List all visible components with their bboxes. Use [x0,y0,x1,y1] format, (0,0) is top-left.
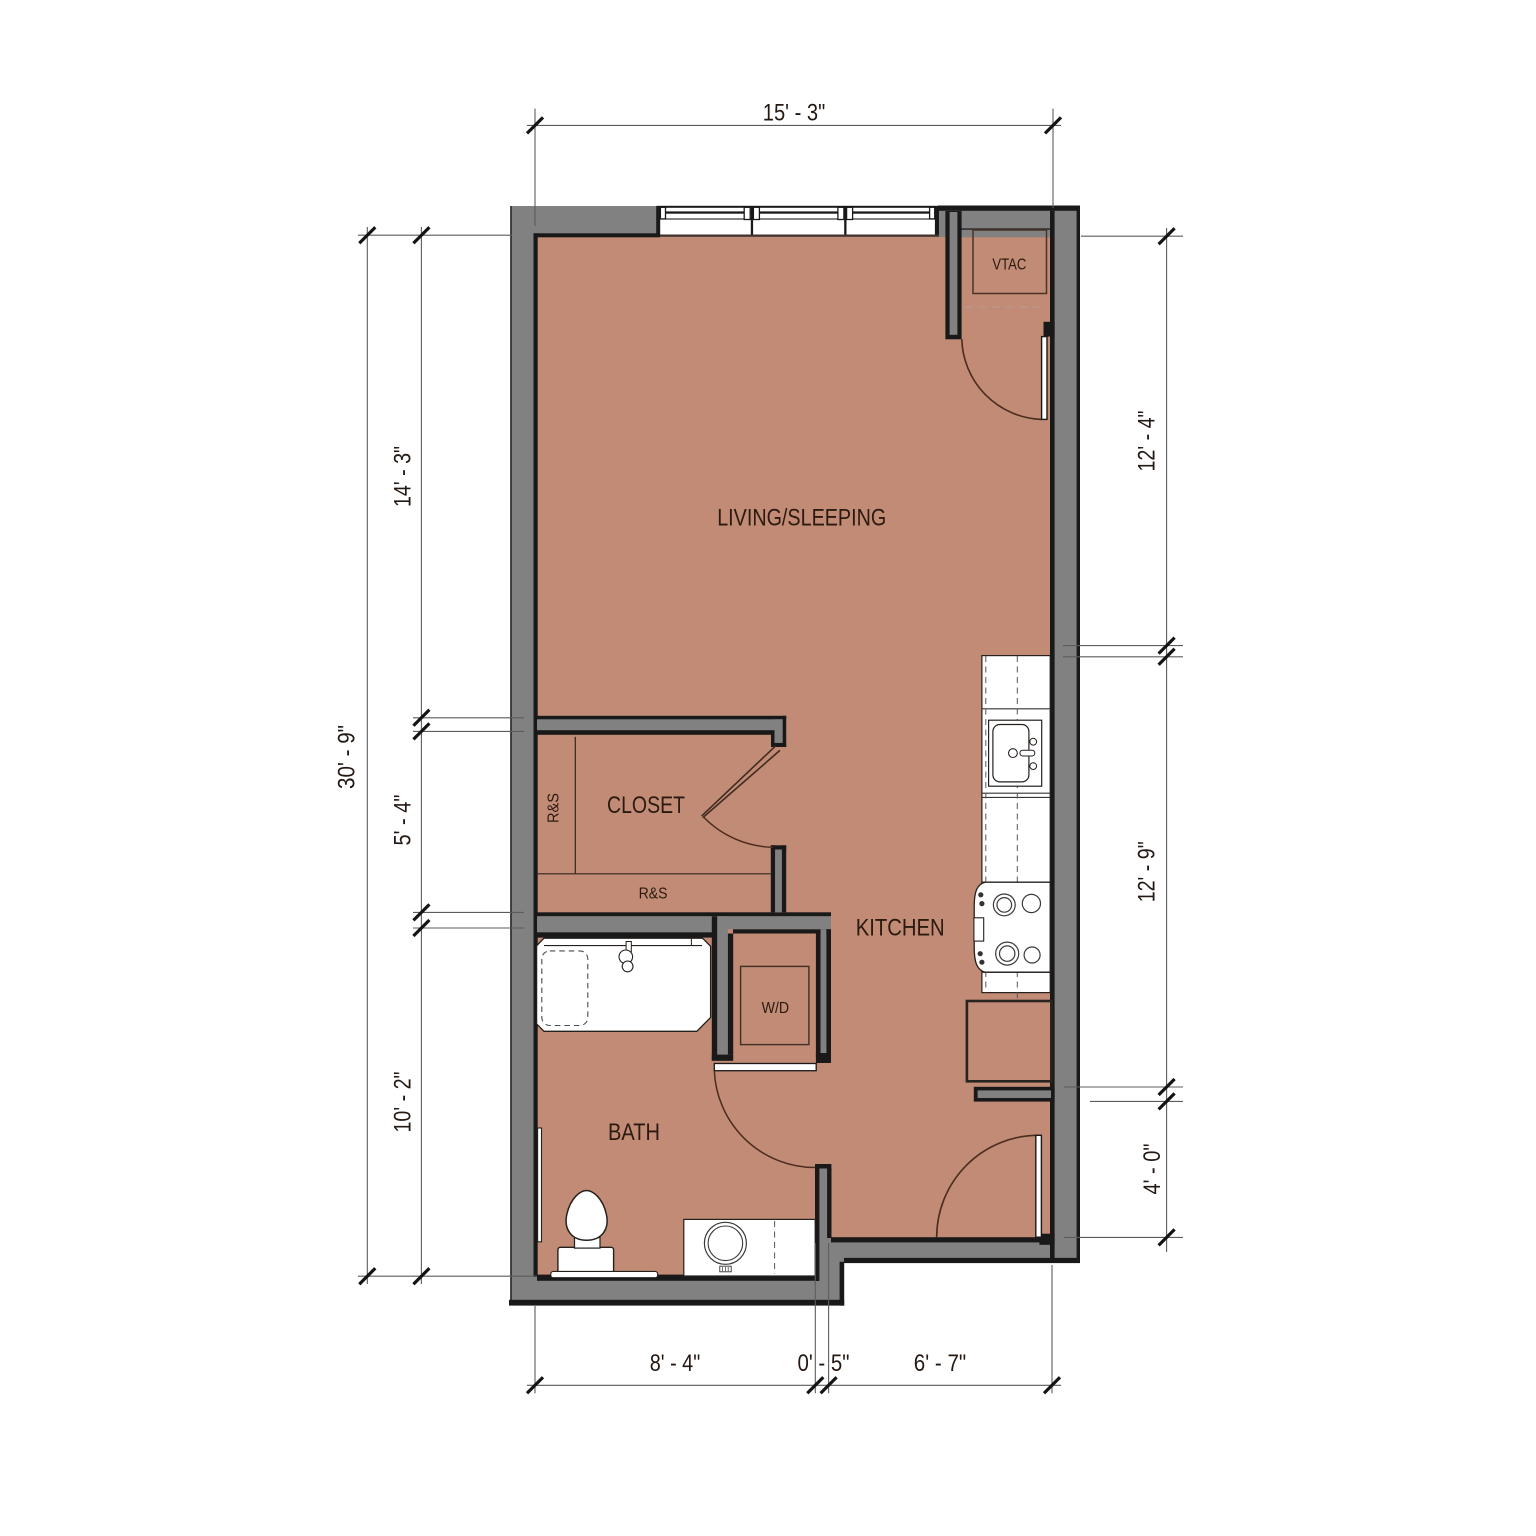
svg-text:5' - 4": 5' - 4" [390,795,417,846]
svg-text:4' - 0": 4' - 0" [1139,1144,1166,1195]
svg-text:BATH: BATH [608,1119,660,1146]
svg-text:0' - 5": 0' - 5" [798,1350,850,1377]
svg-text:12' - 4": 12' - 4" [1133,411,1160,472]
svg-text:8' - 4": 8' - 4" [650,1350,701,1377]
svg-text:15' - 3": 15' - 3" [763,99,826,126]
svg-text:12' - 9": 12' - 9" [1133,841,1160,902]
svg-text:KITCHEN: KITCHEN [856,915,945,942]
svg-text:VTAC: VTAC [992,256,1026,273]
svg-text:CLOSET: CLOSET [607,792,685,819]
svg-text:W/D: W/D [762,1000,790,1017]
svg-text:LIVING/SLEEPING: LIVING/SLEEPING [717,505,886,532]
svg-text:6' - 7": 6' - 7" [914,1350,967,1377]
svg-text:R&S: R&S [639,886,668,903]
svg-text:10' - 2": 10' - 2" [390,1072,417,1133]
svg-text:30' - 9": 30' - 9" [334,725,361,789]
svg-text:R&S: R&S [546,793,563,823]
svg-text:14' - 3": 14' - 3" [390,446,417,507]
